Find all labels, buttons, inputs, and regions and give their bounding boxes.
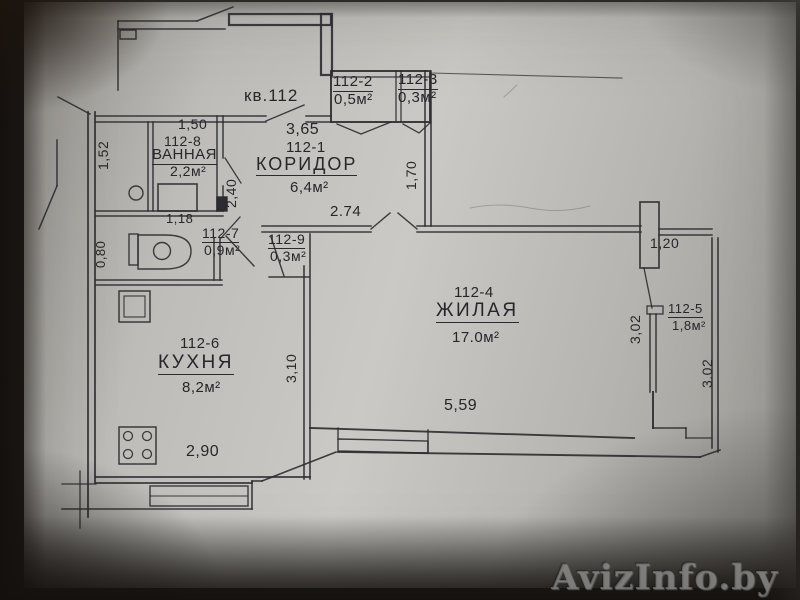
stove-symbol <box>119 427 156 464</box>
floor-plan: кв.112 112-2 0,5м² 112-3 0,3м² 3,65 1,50… <box>0 0 800 600</box>
corridor-right-wall <box>425 71 622 226</box>
room-corridor-id: 112-1 <box>286 140 326 155</box>
room-closet3-area: 0,3м² <box>398 90 437 105</box>
photo-frame: кв.112 112-2 0,5м² 112-3 0,3м² 3,65 1,50… <box>0 0 800 600</box>
room-closet3-id: 112-3 <box>398 72 438 90</box>
unit-label: кв.112 <box>244 87 298 104</box>
kitchen-sink-symbol <box>119 291 150 322</box>
room-corridor-area: 6,4м² <box>290 180 329 195</box>
living-top-wall <box>262 226 712 235</box>
duct-symbol <box>640 202 659 308</box>
dim-bath-height: 1,52 <box>96 141 110 170</box>
dim-kitchen-width: 2,90 <box>186 444 219 460</box>
dim-bath-width: 1,50 <box>178 117 207 131</box>
bathtub-symbol <box>158 184 197 211</box>
left-outer-wall <box>88 112 95 517</box>
room-closet2-area: 0,5м² <box>334 92 373 107</box>
room-wc-area: 0,9м² <box>204 243 240 257</box>
room-wc-id: 112-7 <box>202 226 239 243</box>
room-living-area: 17.0м² <box>452 330 500 345</box>
room-bathroom-area: 2,2м² <box>170 164 206 178</box>
pencil-marks <box>470 85 590 211</box>
corridor-top-wall <box>96 105 331 122</box>
room-closet9-id: 112-9 <box>268 232 305 249</box>
toilet-symbol <box>129 234 191 269</box>
room-kitchen-area: 8,2м² <box>182 380 221 395</box>
dim-wc-width: 1,18 <box>166 212 193 225</box>
photo-of-floor-plan: { "photo": { "watermark": "AvizInfo.by" … <box>0 0 800 600</box>
watermark-text: AvizInfo.by <box>551 557 778 598</box>
dim-hall-depth: 1,70 <box>404 161 418 190</box>
dim-living-width: 5,59 <box>444 398 477 414</box>
dim-wc-height: 0,80 <box>94 241 107 268</box>
room-corridor-name: КОРИДОР <box>256 155 357 176</box>
dim-living-door-span: 2.74 <box>330 204 361 219</box>
room-loggia-id: 112-5 <box>668 302 703 318</box>
dim-loggia-height-left: 3,02 <box>628 315 642 344</box>
room-living-id: 112-4 <box>454 285 494 300</box>
dim-corridor-width: 3,65 <box>286 122 319 138</box>
top-outer-wall <box>229 14 332 75</box>
room-loggia-area: 1,8м² <box>672 319 706 332</box>
dim-loggia-height-right: 3.02 <box>700 359 714 388</box>
bathroom-walls <box>96 116 241 216</box>
room-closet2-id: 112-2 <box>333 74 373 92</box>
room-living-name: ЖИЛАЯ <box>436 301 519 323</box>
kitchen-window-symbol <box>150 486 248 506</box>
washbasin-symbol <box>129 186 143 200</box>
dim-corridor-height: 2,40 <box>224 179 238 208</box>
living-door-swing <box>371 213 417 229</box>
dim-kitchen-depth: 3,10 <box>284 354 298 383</box>
right-outer-wall <box>712 238 718 452</box>
room-kitchen-name: КУХНЯ <box>158 353 234 375</box>
living-bottom-wall <box>310 428 700 457</box>
closet-door-swings <box>337 122 431 134</box>
room-kitchen-id: 112-6 <box>180 336 220 351</box>
room-closet9-area: 0,3м² <box>270 249 306 263</box>
dim-living-right-span: 1,20 <box>650 236 679 250</box>
